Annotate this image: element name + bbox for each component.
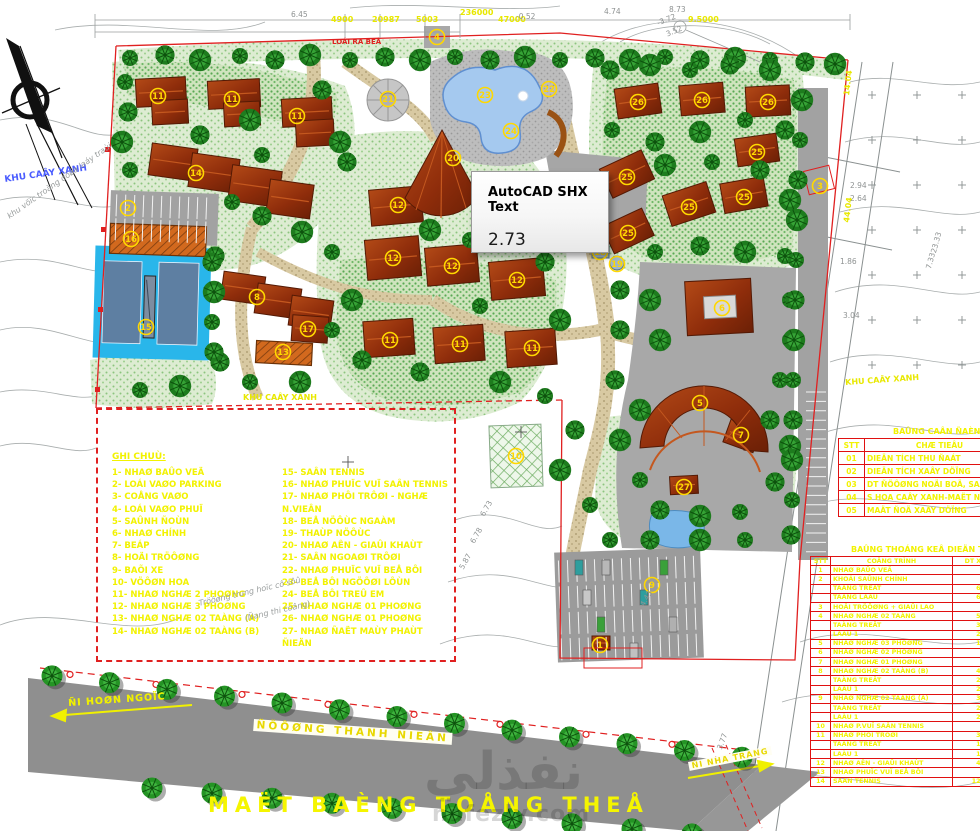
table-cell: MAÄT ÑOÄ XAÂY DÖÏNG	[865, 503, 980, 516]
table-row: 3HOÄI TRÖÔØNG + GIAÛI LAO01298.0	[811, 602, 980, 611]
svg-text:17: 17	[302, 325, 314, 335]
legend-item: 7- BEÁP	[112, 540, 259, 552]
svg-text:25: 25	[683, 203, 695, 213]
legend-item: 27- NHAØ ÑAËT MAÙY PHAÙT ÑIEÄN	[282, 626, 454, 650]
table-row: 5NHAØ NGHÆ 03 PHOØNG136.704546.8	[811, 639, 980, 648]
table-cell	[811, 740, 831, 749]
table-cell: 699.0	[953, 584, 980, 593]
tooltip-title: AutoCAD SHX Text	[488, 185, 608, 215]
table-cell: 12	[811, 758, 831, 767]
table-row: TAÀNG LAÀU688.2	[811, 593, 980, 602]
table-row: 14SAÂN TENNIS1248.6011.248	[811, 777, 980, 786]
table-cell: DIEÄN TÍCH XAÂY DÖÏNG	[865, 464, 980, 477]
table-cell: 443.5	[953, 666, 980, 675]
table-cell	[811, 620, 831, 629]
land-balance-table: BAÛNG CAÂN ÑAÈNG ÑAÁT ÑAI STTCHÆ TIEÂUDI…	[838, 438, 980, 517]
table-cell: S HOA CAÂY XANH-MAËT NÖÔÙC	[865, 490, 980, 503]
table-header-row: STTCOÂNG TRÌNHDT XDS.LÖÔÏNGTOÅNG DT	[811, 557, 980, 565]
table-cell: 3	[811, 602, 831, 611]
table-cell	[811, 630, 831, 639]
legend-item: 26- NHAØ NGHÆ 01 PHOØNG	[282, 613, 454, 625]
legend-item: 11- NHAØ NGHÆ 2 PHOØNG	[112, 589, 259, 601]
table-cell: 1	[811, 565, 831, 574]
table-cell: 268.0	[953, 685, 980, 694]
table-cell: 1248.6	[953, 777, 980, 786]
table-header-cell: CHÆ TIEÂU	[865, 439, 980, 451]
legend-item: 9- BAÕI XE	[112, 565, 259, 577]
table-cell: 136.7	[953, 639, 980, 648]
area-statistics-table: BAÛNG THOÁNG KEÂ DIEÄN TÍCH STTCOÂNG TRÌ…	[810, 556, 980, 787]
table-cell	[811, 584, 831, 593]
svg-text:25: 25	[622, 229, 634, 239]
table-row: TAÀNG TREÄT699.0	[811, 584, 980, 593]
table-cell	[811, 703, 831, 712]
table-cell: NHAØ NGHÆ 03 PHOØNG	[831, 639, 953, 648]
table-cell: 4	[811, 611, 831, 620]
table-cell: LAÀU 1	[831, 685, 953, 694]
table-cell: HOÄI TRÖÔØNG + GIAÛI LAO	[831, 602, 953, 611]
table-cell: 94.9	[953, 648, 980, 657]
svg-text:15: 15	[140, 323, 152, 333]
svg-text:3: 3	[817, 182, 823, 192]
table-row: 10NHAØ P.VUÏ SAÂN TENNIS63.20163.2	[811, 721, 980, 730]
tooltip-value: 2.73	[488, 230, 608, 250]
cad-drawing-canvas[interactable]: 1111111424161513817212322242012121212111…	[0, 0, 980, 831]
table-cell: 10	[811, 721, 831, 730]
table-cell: NHAØ AÊN - GIAÛI KHAÙT	[831, 758, 953, 767]
area-statistics-table-title: BAÛNG THOÁNG KEÂ DIEÄN TÍCH	[851, 545, 980, 554]
table-cell: NHAØ PHUÏC VUÏ BEÅ BÔI	[831, 767, 953, 776]
table-cell: 166.0	[953, 740, 980, 749]
table-row: 03DT ÑÖÔØNG NOÄI BOÄ, SAÂN BAÕI	[839, 477, 980, 490]
legend-item: 22- NHAØ PHUÏC VUÏ BEÅ BÔI	[282, 565, 454, 577]
table-row: 9NHAØ NGHÆ 02 TAÀNG (A)373.501710.0	[811, 694, 980, 703]
table-cell: TAÀNG TREÄT	[831, 740, 953, 749]
table-cell	[811, 712, 831, 721]
svg-text:7: 7	[738, 431, 744, 441]
legend-item: 13- NHAØ NGHÆ 02 TAÀNG (A)	[112, 613, 259, 625]
table-row: LAÀU 1230.8	[811, 630, 980, 639]
table-row: LAÀU 1268.0	[811, 712, 980, 721]
svg-text:25: 25	[621, 173, 633, 183]
legend-box: GHI CHUÙ: 1- NHAØ BAÛO VEÄ2- LOÁI VAØO P…	[96, 408, 456, 662]
table-cell: 7	[811, 657, 831, 666]
table-cell	[953, 574, 980, 583]
svg-text:25: 25	[751, 148, 763, 158]
table-row: 11NHAØ PHÔI TRÔØI328.001328.0	[811, 731, 980, 740]
svg-text:11: 11	[291, 112, 303, 122]
svg-text:11: 11	[152, 92, 164, 102]
table-cell: 04	[839, 490, 865, 503]
table-row: 6NHAØ NGHÆ 02 PHOØNG94.905474.5	[811, 648, 980, 657]
table-cell: 340.3	[953, 620, 980, 629]
table-header-cell: STT	[839, 439, 865, 451]
table-cell: DIEÄN TÍCH THU ÑAÁT	[865, 451, 980, 464]
svg-text:22: 22	[543, 85, 555, 95]
tennis-court	[93, 246, 212, 361]
legend-item: 4- LOÁI VAØO PHUÏ	[112, 504, 259, 516]
svg-text:26: 26	[696, 96, 708, 106]
table-cell: NHAØ NGHÆ 01 PHOØNG	[831, 657, 953, 666]
land-balance-table-title: BAÛNG CAÂN ÑAÈNG ÑAÁT ÑAI	[893, 427, 980, 436]
table-cell	[811, 685, 831, 694]
svg-text:12: 12	[392, 201, 404, 211]
table-cell: 9.3	[953, 565, 980, 574]
svg-text:11: 11	[526, 344, 538, 354]
svg-text:1: 1	[597, 641, 603, 651]
legend-title: GHI CHUÙ:	[112, 452, 166, 462]
table-cell: 14	[811, 777, 831, 786]
legend-item: 24- BEÅ BÔI TREÛ EM	[282, 589, 454, 601]
table-cell: 328.0	[953, 731, 980, 740]
table-row: 1NHAØ BAÛO VEÄ9.3019.3	[811, 565, 980, 574]
svg-text:19: 19	[611, 260, 623, 270]
table-cell: 01	[839, 451, 865, 464]
table-row: TAÀNG TREÄT232.5	[811, 703, 980, 712]
table-cell: 02	[839, 464, 865, 477]
table-cell: LAÀU 1	[831, 712, 953, 721]
svg-text:11: 11	[226, 95, 238, 105]
table-header-cell: COÂNG TRÌNH	[831, 557, 953, 565]
svg-text:11: 11	[384, 336, 396, 346]
table-cell: TAÀNG LAÀU	[831, 593, 953, 602]
table-row: 13NHAØ PHUÏC VUÏ BEÅ BÔI72.90172.9	[811, 767, 980, 776]
svg-text:6: 6	[719, 304, 725, 314]
table-row: 04S HOA CAÂY XANH-MAËT NÖÔÙC	[839, 490, 980, 503]
table-cell: 373.5	[953, 694, 980, 703]
table-cell: 232.5	[953, 675, 980, 684]
svg-text:9: 9	[649, 581, 655, 591]
svg-text:20: 20	[447, 154, 459, 164]
table-cell: 8	[811, 666, 831, 675]
table-cell: TAÀNG TREÄT	[831, 620, 953, 629]
table-cell	[811, 593, 831, 602]
svg-text:12: 12	[446, 262, 458, 272]
legend-column-1: 1- NHAØ BAÛO VEÄ2- LOÁI VAØO PARKING3- C…	[112, 467, 259, 638]
table-row: LAÀU 1156.0	[811, 749, 980, 758]
table-cell: LAÀU 1	[831, 630, 953, 639]
legend-item: 6- NHAØ CHÍNH	[112, 528, 259, 540]
svg-text:26: 26	[762, 98, 774, 108]
table-cell: NHAØ BAÛO VEÄ	[831, 565, 953, 574]
legend-item: 21- SAÂN NGOAØI TRÔØI	[282, 552, 454, 564]
table-row: TAÀNG TREÄT232.5	[811, 675, 980, 684]
table-cell: KHOÁI SAÛNH CHÍNH	[831, 574, 953, 583]
table-cell: 268.0	[953, 712, 980, 721]
table-cell: 571.1	[953, 611, 980, 620]
table-cell: 230.8	[953, 630, 980, 639]
svg-text:23: 23	[479, 91, 491, 101]
table-cell: 72.9	[953, 767, 980, 776]
table-row: 05MAÄT ÑOÄ XAÂY DÖÏNG	[839, 503, 980, 516]
svg-text:14: 14	[190, 169, 202, 179]
svg-text:26: 26	[632, 98, 644, 108]
table-cell: TAÀNG TREÄT	[831, 675, 953, 684]
table-cell: NHAØ P.VUÏ SAÂN TENNIS	[831, 721, 953, 730]
legend-item: 2- LOÁI VAØO PARKING	[112, 479, 259, 491]
legend-item: 17- NHAØ PHÔI TRÔØI - NGHÆ N.VIEÂN	[282, 491, 454, 515]
table-header-row: STTCHÆ TIEÂUDIEÄN TÍCH	[839, 439, 980, 451]
table-row: TAÀNG TREÄT340.3	[811, 620, 980, 629]
table-cell: SAÂN TENNIS	[831, 777, 953, 786]
table-cell	[953, 602, 980, 611]
svg-text:16: 16	[125, 235, 137, 245]
table-cell: TAÀNG TREÄT	[831, 584, 953, 593]
north-arrow-icon	[2, 38, 92, 208]
table-row: 8NHAØ NGHÆ 02 TAÀNG (B)443.501733.0	[811, 666, 980, 675]
legend-item: 12- NHAØ NGHÆ 3 PHOØNG	[112, 601, 259, 613]
table-cell: 63.2	[953, 721, 980, 730]
table-cell: 2	[811, 574, 831, 583]
svg-text:13: 13	[277, 348, 289, 358]
table-row: 01DIEÄN TÍCH THU ÑAÁT	[839, 451, 980, 464]
legend-item: 19- THAÙP NÖÔÙC	[282, 528, 454, 540]
table-cell: 5	[811, 639, 831, 648]
svg-text:21: 21	[382, 95, 394, 105]
table-cell: 232.5	[953, 703, 980, 712]
legend-item: 18- BEÅ NÖÔÙC NGAÀM	[282, 516, 454, 528]
svg-text:12: 12	[511, 276, 523, 286]
table-cell: 9	[811, 694, 831, 703]
table-cell: NHAØ NGHÆ 02 TAÀNG (A)	[831, 694, 953, 703]
table-cell: 13	[811, 767, 831, 776]
table-cell: NHAØ NGHÆ 02 TAÀNG (B)	[831, 666, 953, 675]
svg-text:8: 8	[254, 293, 260, 303]
table-header-cell: STT	[811, 557, 831, 565]
legend-item: 14- NHAØ NGHÆ 02 TAÀNG (B)	[112, 626, 259, 638]
svg-text:10: 10	[510, 452, 522, 462]
table-cell: NHAØ NGHÆ 02 TAÀNG	[831, 611, 953, 620]
legend-item: 10- VÖÔØN HOA	[112, 577, 259, 589]
svg-text:11: 11	[454, 340, 466, 350]
table-cell: 03	[839, 477, 865, 490]
legend-item: 23- BEÅ BÔI NGÖÔØI LÔÙN	[282, 577, 454, 589]
legend-item: 5- SAÛNH ÑOÙN	[112, 516, 259, 528]
table-cell: LAÀU 1	[831, 749, 953, 758]
table-row: 4NHAØ NGHÆ 02 TAÀNG571.1021.040	[811, 611, 980, 620]
table-cell: NHAØ PHÔI TRÔØI	[831, 731, 953, 740]
legend-item: 20- NHAØ AÊN - GIAÛI KHAÙT	[282, 540, 454, 552]
legend-item: 25- NHAØ NGHÆ 01 PHOØNG	[282, 601, 454, 613]
table-row: TAÀNG TREÄT166.0	[811, 740, 980, 749]
table-row: 7NHAØ NGHÆ 01 PHOØNG57.406344.4	[811, 657, 980, 666]
shx-text-tooltip: AutoCAD SHX Text 2.73	[471, 171, 609, 253]
legend-item: 15- SAÂN TENNIS	[282, 467, 454, 479]
table-row: 02DIEÄN TÍCH XAÂY DÖÏNG	[839, 464, 980, 477]
table-cell: TAÀNG TREÄT	[831, 703, 953, 712]
table-cell: 6	[811, 648, 831, 657]
drawing-title: MAËT BAÈNG TOÅNG THEÅ	[208, 793, 649, 817]
legend-item: 3- COÅNG VAØO	[112, 491, 259, 503]
svg-text:25: 25	[738, 193, 750, 203]
legend-item: 8- HOÄI TRÖÔØNG	[112, 552, 259, 564]
table-cell: 460.0	[953, 758, 980, 767]
table-header-cell: DT XD	[953, 557, 980, 565]
table-cell: 11	[811, 731, 831, 740]
table-row: 2KHOÁI SAÛNH CHÍNH011.512	[811, 574, 980, 583]
svg-text:27: 27	[678, 483, 690, 493]
table-cell: 05	[839, 503, 865, 516]
table-row: LAÀU 1268.0	[811, 685, 980, 694]
svg-text:2: 2	[125, 204, 131, 214]
table-cell	[811, 749, 831, 758]
svg-text:24: 24	[505, 127, 517, 137]
svg-text:4: 4	[434, 33, 440, 43]
table-cell: DT ÑÖÔØNG NOÄI BOÄ, SAÂN BAÕI	[865, 477, 980, 490]
svg-text:5: 5	[697, 399, 703, 409]
table-cell: 156.0	[953, 749, 980, 758]
table-cell: NHAØ NGHÆ 02 PHOØNG	[831, 648, 953, 657]
svg-text:12: 12	[387, 254, 399, 264]
table-cell	[811, 675, 831, 684]
legend-item: 16- NHAØ PHUÏC VUÏ SAÂN TENNIS	[282, 479, 454, 491]
table-cell: 57.4	[953, 657, 980, 666]
table-cell: 688.2	[953, 593, 980, 602]
legend-item: 1- NHAØ BAÛO VEÄ	[112, 467, 259, 479]
table-row: 12NHAØ AÊN - GIAÛI KHAÙT460.001460.0	[811, 758, 980, 767]
legend-column-2: 15- SAÂN TENNIS16- NHAØ PHUÏC VUÏ SAÂN T…	[282, 467, 454, 650]
